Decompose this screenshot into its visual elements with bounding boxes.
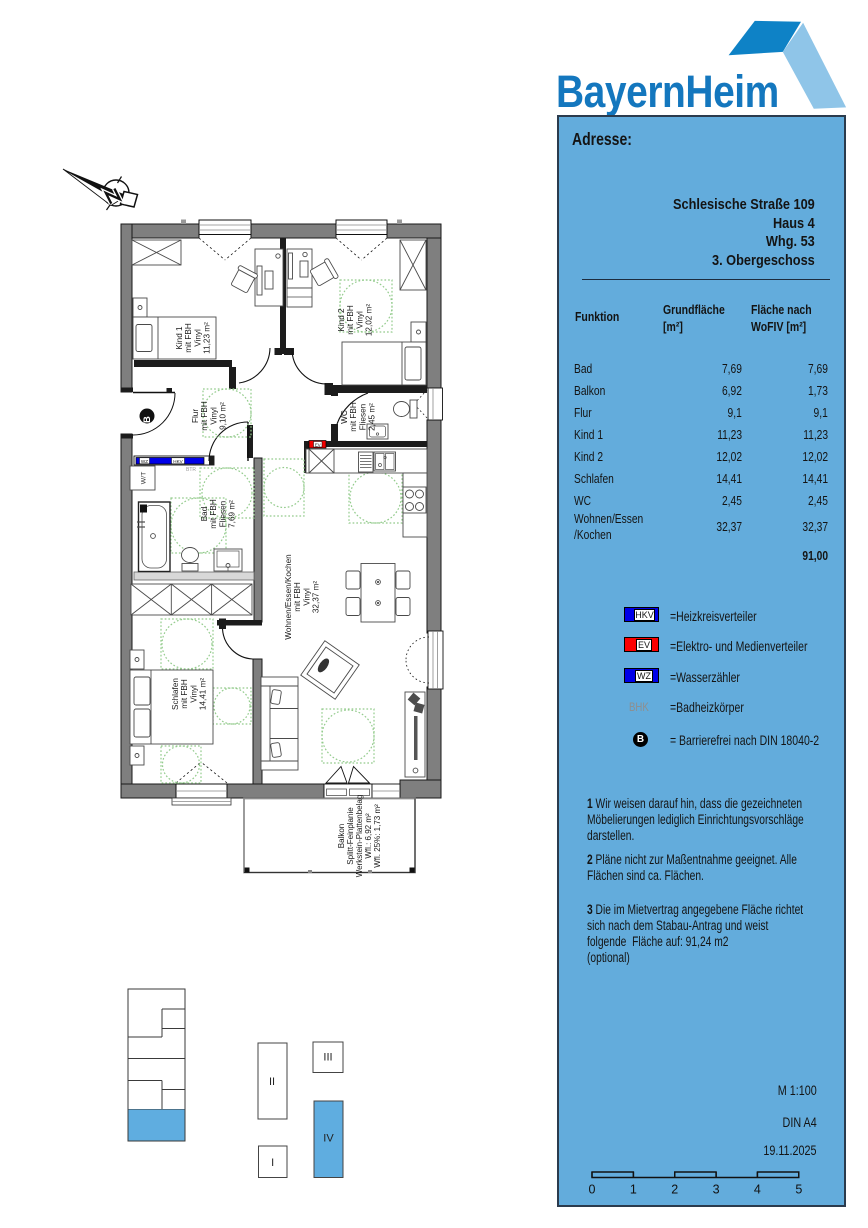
svg-text:7,69 m²: 7,69 m² <box>228 500 237 528</box>
svg-text:Kind 1: Kind 1 <box>175 326 184 350</box>
svg-text:Wohnen/Essen/Kochen: Wohnen/Essen/Kochen <box>284 554 293 640</box>
svg-text:WZ: WZ <box>141 459 148 464</box>
svg-text:3: 3 <box>713 1183 720 1197</box>
svg-text:B: B <box>142 416 153 423</box>
svg-text:WC: WC <box>340 410 349 424</box>
svg-text:Fliesen: Fliesen <box>358 403 367 430</box>
svg-text:I: I <box>271 1157 274 1169</box>
svg-text:5: 5 <box>795 1183 802 1197</box>
svg-text:Schlafen: Schlafen <box>171 678 180 710</box>
svg-text:4: 4 <box>754 1183 761 1197</box>
svg-text:Splitt-Feinplanie: Splitt-Feinplanie <box>346 807 355 865</box>
svg-text:Vinyl: Vinyl <box>193 329 202 347</box>
svg-text:mit FBH: mit FBH <box>180 679 189 709</box>
svg-text:12,02 m²: 12,02 m² <box>365 304 374 337</box>
svg-text:2,45 m²: 2,45 m² <box>368 403 377 431</box>
svg-text:BTR: BTR <box>186 467 196 473</box>
svg-text:Wfl.: 6,92 m²: Wfl.: 6,92 m² <box>364 813 373 859</box>
svg-text:IV: IV <box>323 1133 334 1145</box>
svg-text:Vinyl: Vinyl <box>302 588 311 606</box>
svg-text:II: II <box>269 1076 275 1088</box>
svg-text:0: 0 <box>589 1183 596 1197</box>
svg-text:14,41 m²: 14,41 m² <box>199 678 208 711</box>
svg-text:HKV: HKV <box>173 459 183 464</box>
svg-text:Fliesen: Fliesen <box>218 500 227 527</box>
svg-text:32,37 m²: 32,37 m² <box>312 581 321 614</box>
svg-text:2: 2 <box>671 1183 678 1197</box>
svg-text:Vinyl: Vinyl <box>189 685 198 703</box>
svg-text:9,10 m²: 9,10 m² <box>219 402 228 430</box>
svg-text:Flur: Flur <box>191 409 200 423</box>
svg-text:Vinyl: Vinyl <box>355 311 364 329</box>
svg-text:mit FBH: mit FBH <box>346 305 355 335</box>
svg-text:EV: EV <box>315 442 321 447</box>
svg-text:Balkon: Balkon <box>337 824 346 848</box>
svg-text:Werkstein-Plattenbelag: Werkstein-Plattenbelag <box>355 795 364 878</box>
svg-text:mit FBH: mit FBH <box>184 323 193 353</box>
svg-text:mit FBH: mit FBH <box>349 402 358 432</box>
svg-text:mit FBH: mit FBH <box>293 582 302 612</box>
svg-text:11,23 m²: 11,23 m² <box>203 322 212 354</box>
svg-text:W/T: W/T <box>141 472 148 484</box>
svg-text:III: III <box>323 1052 332 1064</box>
svg-text:Bad: Bad <box>200 506 209 521</box>
svg-text:1: 1 <box>630 1183 637 1197</box>
svg-text:mit FBH: mit FBH <box>200 401 209 431</box>
svg-text:mit FBH: mit FBH <box>209 499 218 529</box>
svg-text:Wfl. 25%: 1,73 m²: Wfl. 25%: 1,73 m² <box>373 804 382 868</box>
svg-text:Kind 2: Kind 2 <box>337 308 346 332</box>
svg-text:Vinyl: Vinyl <box>209 407 218 425</box>
